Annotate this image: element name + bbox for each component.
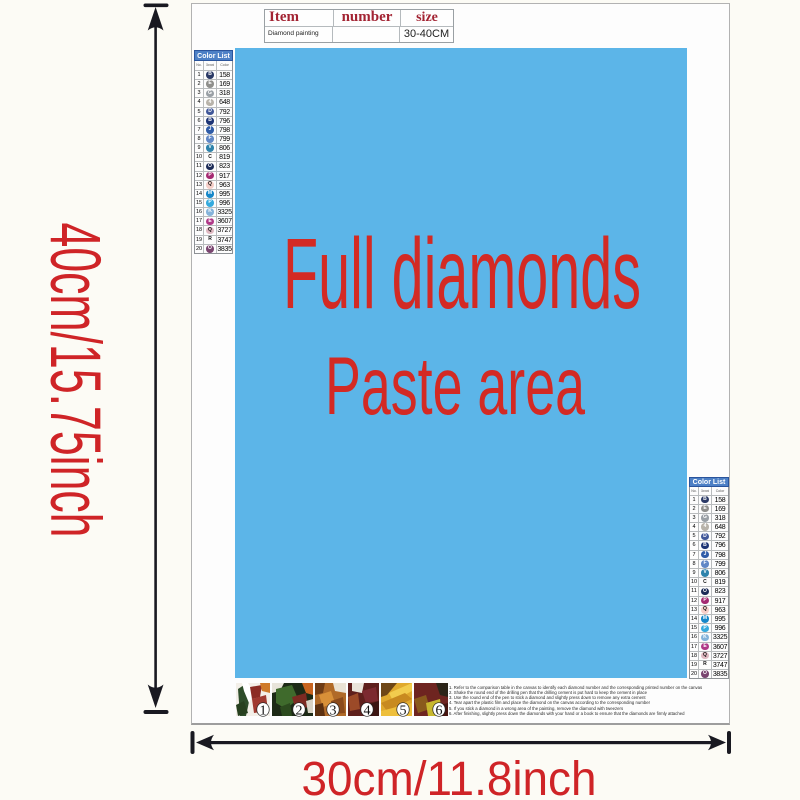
svg-text:2: 2 [296,704,303,718]
svg-text:40cm/15.75inch: 40cm/15.75inch [35,223,114,538]
svg-text:Paste area: Paste area [325,341,585,432]
svg-text:4: 4 [364,704,371,718]
svg-text:1: 1 [260,704,267,718]
svg-text:3: 3 [330,704,337,718]
svg-text:6: 6 [436,704,443,718]
svg-text:5: 5 [400,704,407,718]
svg-text:30cm/11.8inch: 30cm/11.8inch [302,752,597,800]
svg-text:Full diamonds: Full diamonds [283,218,641,330]
